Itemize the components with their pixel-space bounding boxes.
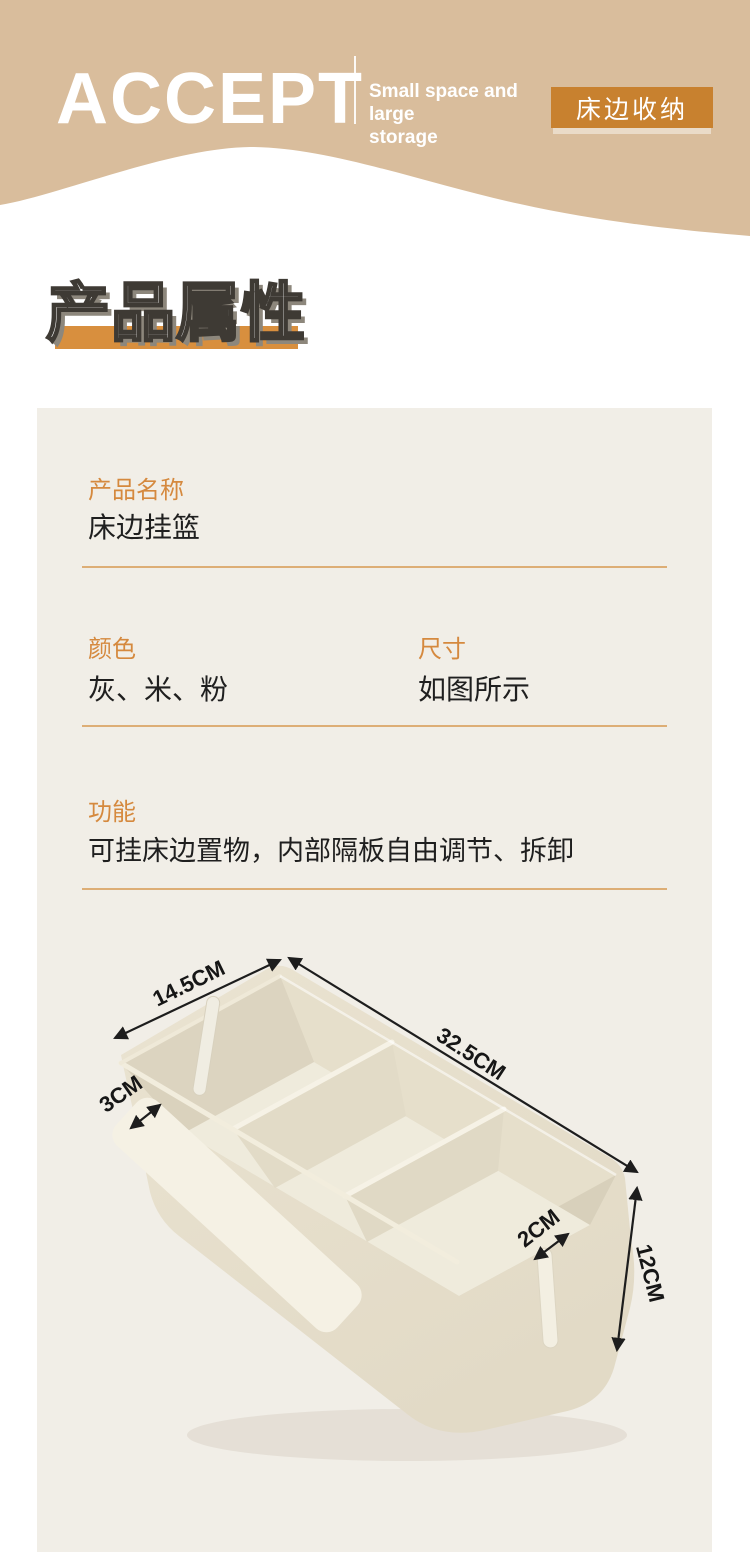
tagline-line-2: storage — [369, 126, 549, 149]
tagline-line-1: Small space and large — [369, 80, 549, 126]
attr-size-value: 如图所示 — [418, 668, 530, 708]
attr-color-label: 颜色 — [88, 629, 136, 664]
row-divider — [82, 725, 667, 727]
section-title: 产品属性 — [46, 262, 326, 362]
attr-function-value: 可挂床边置物，内部隔板自由调节、拆卸 — [88, 829, 574, 868]
attr-function-label: 功能 — [88, 792, 136, 827]
product-dimension-diagram: 14.5CM 32.5CM 3CM 2CM 12CM — [37, 940, 712, 1552]
basket-shadow — [187, 1409, 627, 1461]
row-divider — [82, 888, 667, 890]
dimension-label-height: 12CM — [631, 1242, 669, 1305]
brand-logo: ACCEPT — [56, 58, 364, 140]
attributes-panel: 产品名称 床边挂篮 颜色 尺寸 灰、米、粉 如图所示 功能 可挂床边置物，内部隔… — [37, 408, 712, 1552]
brand-header: ACCEPT Small space and large storage 床边收… — [0, 0, 750, 245]
attr-name-label: 产品名称 — [88, 470, 184, 505]
row-divider — [82, 566, 667, 568]
brand-tagline: Small space and large storage — [369, 80, 549, 149]
page-title: 产品属性 — [46, 262, 326, 354]
attr-name-value: 床边挂篮 — [88, 506, 200, 546]
category-badge: 床边收纳 — [551, 87, 713, 128]
header-divider-line — [354, 56, 356, 124]
attr-color-value: 灰、米、粉 — [88, 668, 228, 708]
attr-size-label: 尺寸 — [418, 629, 466, 664]
